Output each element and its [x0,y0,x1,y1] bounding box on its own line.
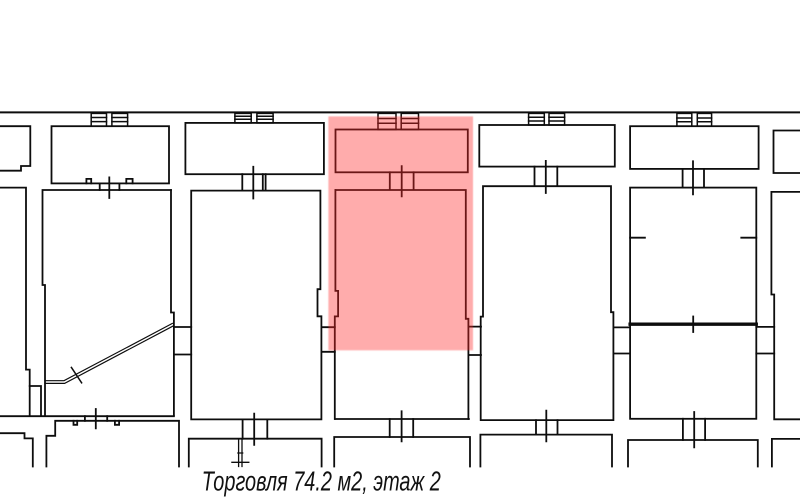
svg-text:Торговля 74.2 м2, этаж 2: Торговля 74.2 м2, этаж 2 [202,465,441,496]
